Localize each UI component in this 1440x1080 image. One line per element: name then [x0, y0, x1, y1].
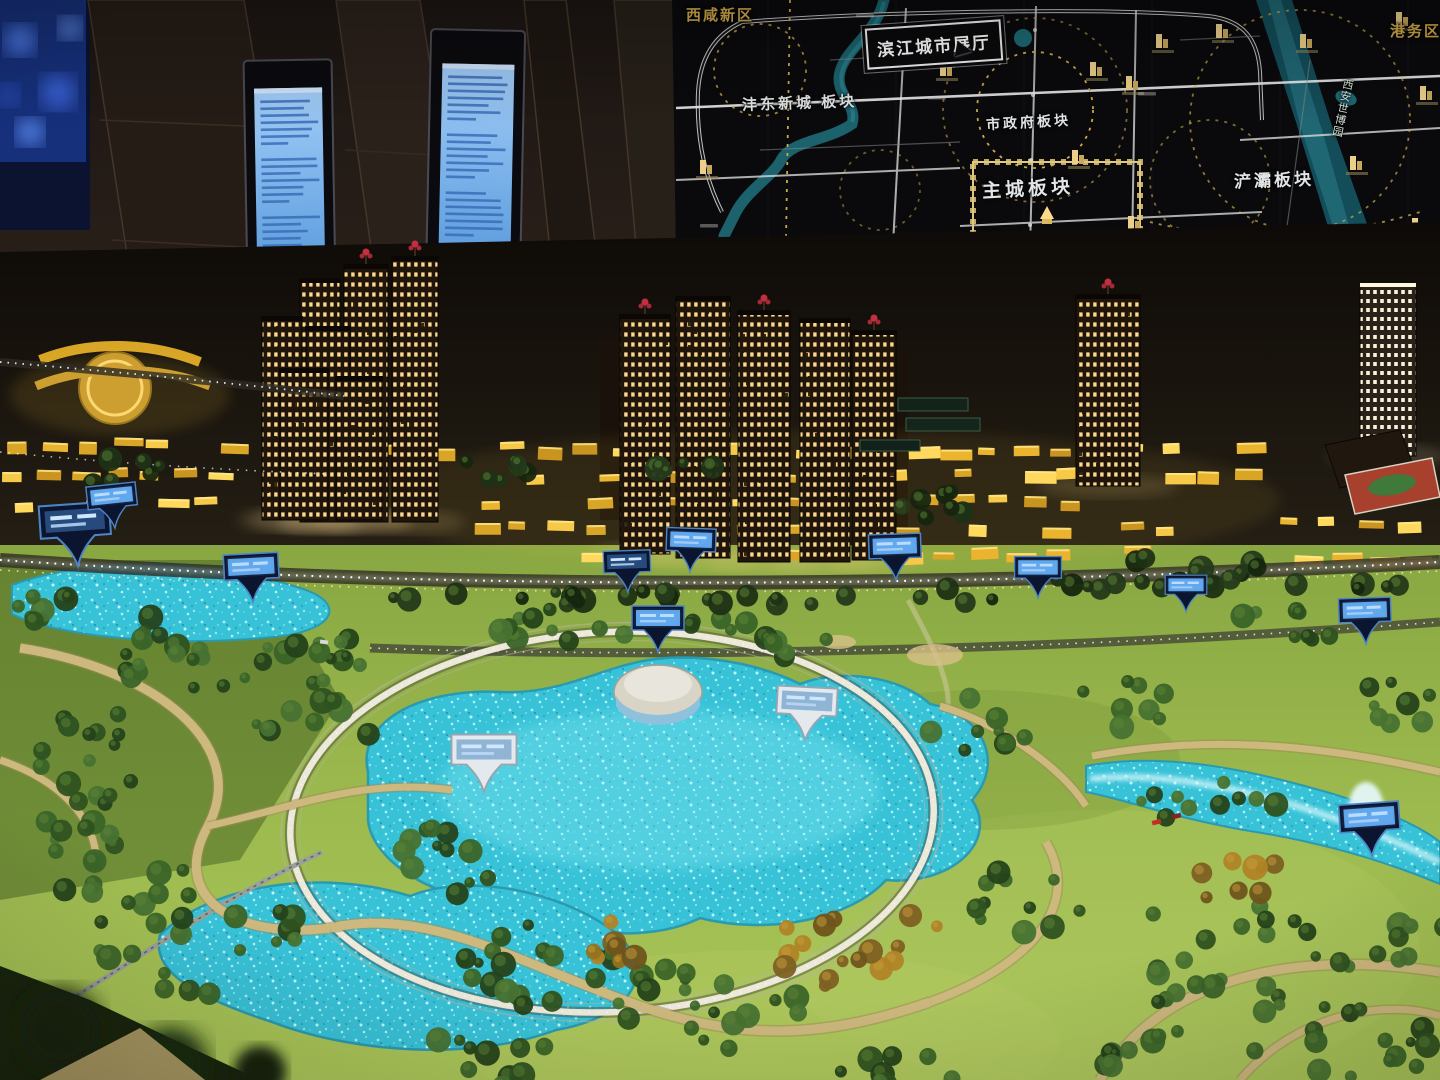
lake-pavilion	[614, 665, 702, 725]
ambient-led-screen	[0, 0, 86, 162]
map-board	[672, 0, 1440, 263]
exhibition-hall-model-photo: 西咸新区 沣东新城 板块 市政府板块 主城板块 港务区 浐灞板块 西安世博园 滨…	[0, 0, 1440, 1080]
left-retail-complex	[10, 346, 230, 435]
